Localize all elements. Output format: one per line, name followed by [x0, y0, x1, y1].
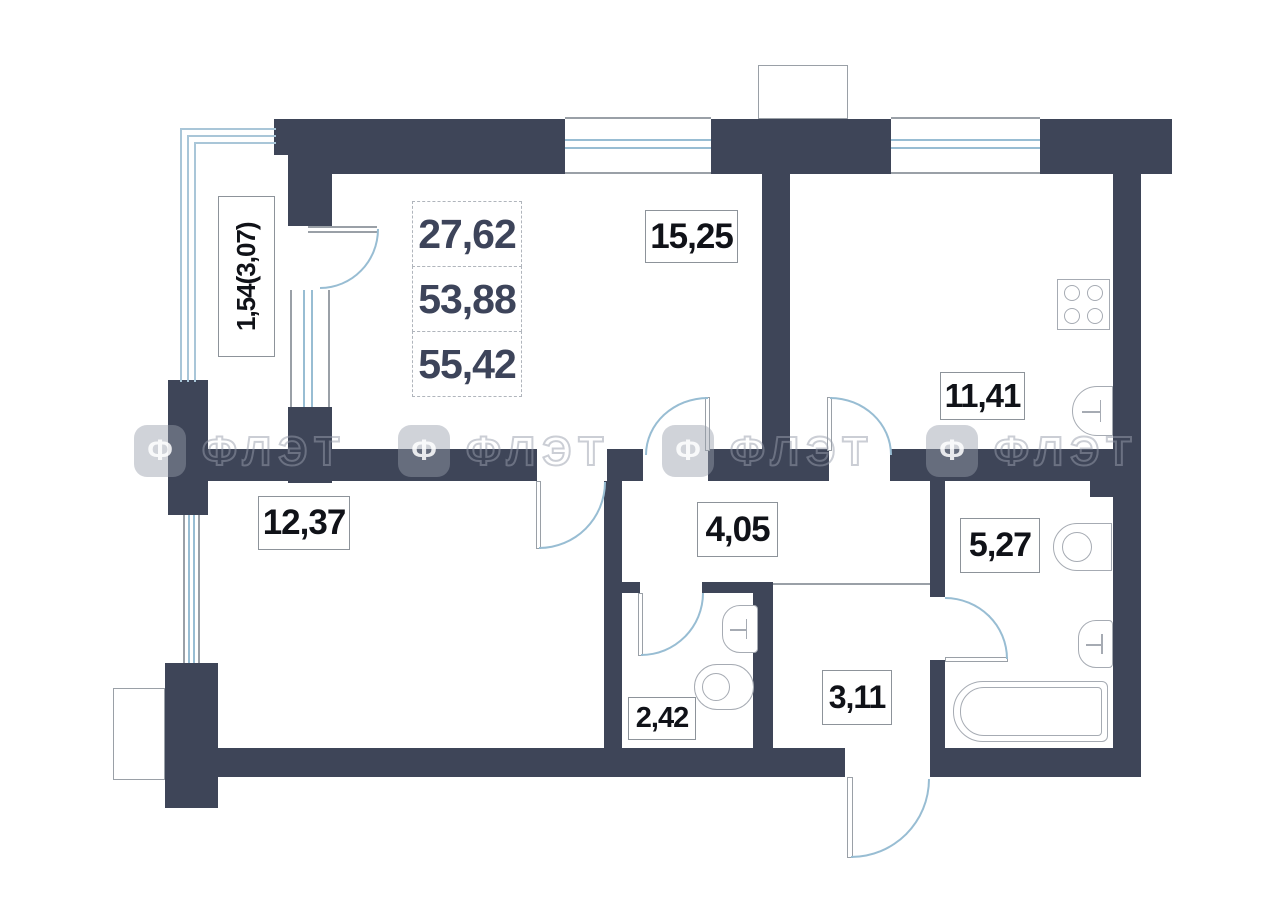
bedroom-door-arc: [539, 482, 606, 549]
window-living-glass-2: [565, 147, 711, 149]
floor-plan: 27,62 53,88 55,42 15,25 11,41 12,37 4,05…: [0, 0, 1280, 905]
wc-sink-icon: [722, 605, 758, 653]
stove-burner-icon: [1087, 308, 1103, 324]
stove-burner-icon: [1064, 285, 1080, 301]
room-label-hallway: 3,11: [822, 670, 892, 725]
window-balcony-glass-1: [303, 290, 305, 407]
kitchen-door-arc: [830, 397, 892, 455]
window-kitchen-top-edge: [891, 117, 1040, 119]
wc-toilet-icon: [694, 664, 754, 710]
wall-band-right: [890, 449, 1113, 481]
stove-burner-icon: [1087, 285, 1103, 301]
kitchen-sink-icon: [1072, 386, 1113, 436]
exterior-ledge-box: [113, 688, 165, 780]
room-label-hall: 4,05: [697, 502, 778, 557]
wc-door-arc: [641, 593, 704, 656]
wall-left-upper: [168, 380, 208, 515]
window-kitchen-glass-1: [891, 139, 1040, 141]
window-bedroom-edge-2: [198, 515, 200, 663]
wall-top-right: [1040, 119, 1172, 174]
wall-hall-bathroom-upper: [930, 481, 945, 597]
window-balcony-edge-2: [328, 290, 330, 407]
wall-living-kitchen: [762, 174, 790, 449]
room-label-kitchen: 11,41: [940, 372, 1025, 420]
window-balcony-glass-2: [311, 290, 313, 407]
window-living-bottom-edge: [565, 172, 711, 174]
wall-band-bedroom: [208, 449, 537, 481]
wall-bedroom-wc: [604, 481, 622, 748]
window-bedroom-edge-1: [183, 515, 185, 663]
entrance-door-arc: [851, 779, 930, 858]
window-kitchen-glass-2: [891, 147, 1040, 149]
room-label-bedroom: 12,37: [258, 496, 350, 550]
wall-hall-bathroom-lower: [930, 660, 945, 748]
window-kitchen-bottom-edge: [891, 172, 1040, 174]
balcony-door-arc: [320, 229, 379, 289]
window-living-top-edge: [565, 117, 711, 119]
wall-top-center: [711, 119, 891, 174]
wall-top-left: [274, 119, 565, 174]
room-label-living: 15,25: [645, 210, 738, 263]
room-label-wc: 2,42: [628, 697, 696, 740]
wall-top-left-notch: [274, 155, 288, 174]
living-door-arc: [645, 397, 708, 455]
area-summary-net: 53,88: [412, 266, 522, 332]
balcony-door-frame-1: [308, 226, 377, 228]
wall-wc-top-stub: [622, 582, 640, 593]
wall-right: [1113, 174, 1141, 777]
room-label-balcony: 1,54(3,07): [218, 196, 275, 357]
wall-band-mid: [607, 449, 643, 481]
hall-hallway-divider-line: [773, 583, 930, 585]
wall-bathroom-notch: [1090, 481, 1115, 497]
window-bedroom-glass-2: [193, 515, 195, 663]
wall-wc-top: [702, 582, 773, 593]
room-label-bathroom: 5,27: [960, 518, 1040, 573]
wall-band-hall: [708, 449, 829, 481]
bathroom-sink-icon: [1078, 620, 1113, 668]
wall-corner-block-bottom-left: [165, 663, 218, 808]
bathtub-inner-icon: [960, 687, 1102, 736]
area-summary-total: 55,42: [412, 331, 522, 397]
area-summary-living: 27,62: [412, 201, 522, 267]
window-balcony-edge-1: [290, 290, 292, 407]
toilet-bowl-icon: [702, 673, 730, 701]
area-summary: 27,62 53,88 55,42: [412, 202, 522, 397]
toilet-bowl-icon: [1062, 532, 1092, 562]
window-bedroom-glass-1: [188, 515, 190, 663]
stove-burner-icon: [1064, 308, 1080, 324]
bathroom-toilet-icon: [1053, 523, 1112, 571]
vent-shaft-box: [758, 65, 848, 119]
stove-icon: [1057, 279, 1110, 330]
wall-balcony-door-pillar: [288, 174, 332, 226]
window-living-glass-1: [565, 139, 711, 141]
wall-bottom-left: [218, 748, 845, 777]
wall-bottom-right: [930, 748, 1141, 777]
bathroom-door-arc: [945, 597, 1008, 659]
bathtub-icon: [953, 681, 1108, 742]
